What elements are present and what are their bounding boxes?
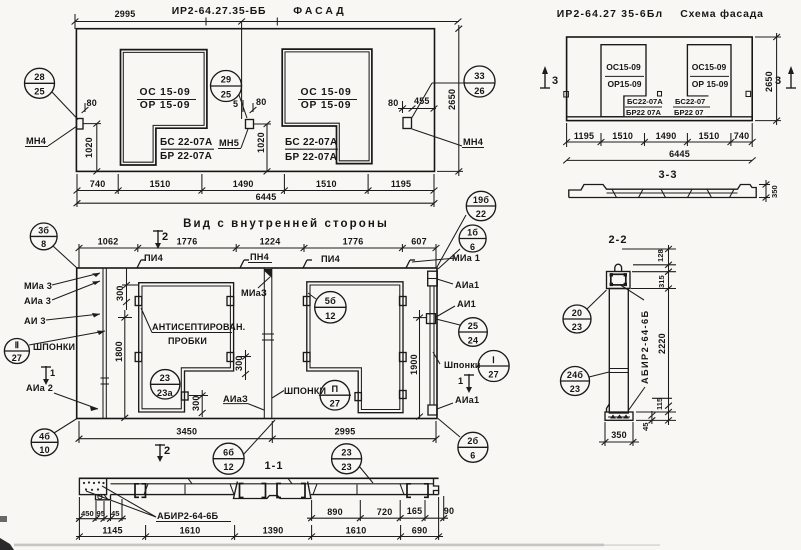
svg-text:300: 300 bbox=[115, 285, 125, 301]
svg-text:740: 740 bbox=[734, 131, 750, 141]
svg-text:1020: 1020 bbox=[256, 132, 266, 153]
svg-text:25: 25 bbox=[468, 321, 478, 331]
svg-text:1-1: 1-1 bbox=[265, 460, 284, 472]
svg-text:27: 27 bbox=[12, 353, 22, 363]
svg-text:25: 25 bbox=[221, 90, 232, 100]
svg-text:МН4: МН4 bbox=[463, 137, 484, 147]
svg-text:1: 1 bbox=[458, 376, 463, 386]
svg-text:27: 27 bbox=[488, 370, 498, 380]
svg-text:23а: 23а bbox=[157, 388, 174, 398]
svg-text:1510: 1510 bbox=[612, 131, 633, 141]
svg-text:1510: 1510 bbox=[150, 179, 171, 189]
svg-text:3б: 3б bbox=[38, 226, 49, 236]
svg-text:6б: 6б bbox=[223, 448, 234, 458]
svg-text:1б: 1б bbox=[467, 228, 478, 238]
svg-text:Шпонки: Шпонки bbox=[444, 360, 481, 370]
svg-text:ПРОБКИ: ПРОБКИ bbox=[168, 336, 207, 346]
svg-text:12: 12 bbox=[325, 311, 336, 321]
svg-text:607: 607 bbox=[411, 237, 427, 247]
svg-text:12: 12 bbox=[223, 462, 233, 472]
svg-text:АБИР2-64-6Б: АБИР2-64-6Б bbox=[157, 511, 219, 521]
svg-text:27: 27 bbox=[330, 399, 341, 409]
svg-text:БС22-07А: БС22-07А bbox=[627, 97, 663, 106]
svg-text:ФАСАД: ФАСАД bbox=[293, 6, 346, 17]
svg-text:БР 22-07А: БР 22-07А bbox=[285, 152, 337, 163]
svg-text:95: 95 bbox=[97, 509, 106, 518]
svg-text:128: 128 bbox=[656, 249, 665, 262]
svg-text:2220: 2220 bbox=[657, 333, 667, 354]
svg-text:МН5: МН5 bbox=[219, 138, 239, 148]
svg-text:890: 890 bbox=[327, 507, 343, 517]
svg-text:29: 29 bbox=[221, 75, 232, 85]
svg-text:2650: 2650 bbox=[764, 71, 774, 92]
svg-text:1145: 1145 bbox=[102, 526, 122, 536]
svg-text:2995: 2995 bbox=[335, 427, 356, 437]
svg-text:БР22 07А: БР22 07А bbox=[626, 108, 662, 117]
svg-text:2650: 2650 bbox=[447, 89, 457, 110]
svg-text:ОС 15-09: ОС 15-09 bbox=[139, 87, 190, 98]
svg-text:АИа1: АИа1 bbox=[455, 395, 479, 405]
svg-text:23: 23 bbox=[572, 322, 582, 332]
svg-text:10: 10 bbox=[39, 445, 49, 455]
svg-text:АИа1: АИа1 bbox=[455, 280, 479, 290]
svg-text:20: 20 bbox=[572, 308, 582, 318]
svg-text:АИаЗ: АИаЗ bbox=[223, 394, 248, 404]
svg-text:1490: 1490 bbox=[233, 179, 254, 189]
svg-text:720: 720 bbox=[377, 507, 393, 517]
svg-text:БС22-07: БС22-07 bbox=[675, 97, 705, 106]
svg-text:28: 28 bbox=[34, 72, 45, 82]
svg-text:8: 8 bbox=[41, 239, 46, 249]
svg-text:ОС15-09: ОС15-09 bbox=[606, 62, 641, 72]
svg-text:АИ1: АИ1 bbox=[457, 299, 476, 309]
svg-text:25: 25 bbox=[34, 87, 45, 97]
svg-text:Схема фасада: Схема фасада bbox=[680, 8, 763, 20]
svg-text:Вид с внутренней стороны: Вид с внутренней стороны bbox=[183, 218, 389, 230]
svg-text:1490: 1490 bbox=[656, 131, 677, 141]
svg-text:1900: 1900 bbox=[409, 354, 419, 375]
svg-text:2б: 2б bbox=[467, 436, 478, 446]
svg-text:ОР 15-09: ОР 15-09 bbox=[301, 100, 351, 111]
svg-text:23: 23 bbox=[160, 373, 171, 383]
svg-text:740: 740 bbox=[90, 179, 106, 189]
svg-text:П: П bbox=[331, 384, 338, 394]
svg-text:6445: 6445 bbox=[256, 192, 277, 202]
svg-text:1776: 1776 bbox=[343, 237, 364, 247]
svg-text:90: 90 bbox=[444, 506, 454, 516]
svg-text:ОР 15-09: ОР 15-09 bbox=[692, 79, 729, 89]
svg-text:АИ 3: АИ 3 bbox=[24, 316, 46, 326]
svg-text:ОР15-09: ОР15-09 bbox=[607, 79, 641, 89]
svg-text:1195: 1195 bbox=[391, 179, 411, 189]
svg-text:1510: 1510 bbox=[316, 179, 337, 189]
svg-text:3: 3 bbox=[552, 75, 559, 87]
svg-text:6: 6 bbox=[470, 242, 475, 252]
svg-text:80: 80 bbox=[388, 98, 398, 108]
svg-text:350: 350 bbox=[611, 430, 627, 440]
svg-text:БС 22-07А: БС 22-07А bbox=[285, 137, 338, 148]
svg-text:МИа 1: МИа 1 bbox=[452, 253, 480, 263]
svg-text:МИа 3: МИа 3 bbox=[24, 281, 52, 291]
svg-text:БР22 07: БР22 07 bbox=[674, 108, 704, 117]
svg-text:1776: 1776 bbox=[177, 237, 198, 247]
svg-text:26: 26 bbox=[474, 86, 485, 96]
svg-text:3450: 3450 bbox=[176, 427, 197, 437]
svg-text:350: 350 bbox=[770, 185, 779, 198]
svg-text:300: 300 bbox=[191, 395, 201, 411]
svg-text:19б: 19б bbox=[473, 195, 489, 205]
svg-text:МИаЗ: МИаЗ bbox=[241, 288, 267, 298]
svg-text:2: 2 bbox=[162, 231, 169, 243]
svg-text:АНТИСЕПТИРОВАН.: АНТИСЕПТИРОВАН. bbox=[152, 322, 245, 332]
svg-text:3: 3 bbox=[775, 75, 782, 87]
svg-text:АИа 2: АИа 2 bbox=[26, 383, 53, 393]
svg-text:ОР 15-09: ОР 15-09 bbox=[140, 100, 190, 111]
svg-text:165: 165 bbox=[407, 506, 423, 516]
svg-text:6: 6 bbox=[470, 451, 475, 461]
svg-text:22: 22 bbox=[476, 209, 486, 219]
svg-text:ОС 15-09: ОС 15-09 bbox=[300, 87, 351, 98]
svg-text:300: 300 bbox=[234, 355, 244, 371]
svg-text:АИа 3: АИа 3 bbox=[24, 296, 51, 306]
svg-text:1610: 1610 bbox=[346, 526, 367, 536]
svg-text:5б: 5б bbox=[325, 296, 336, 306]
svg-text:24: 24 bbox=[468, 336, 478, 346]
svg-text:80: 80 bbox=[87, 98, 97, 108]
svg-text:ИР2-64.27.35-ББ: ИР2-64.27.35-ББ bbox=[172, 6, 266, 17]
svg-text:45: 45 bbox=[641, 422, 650, 431]
svg-text:23: 23 bbox=[570, 384, 580, 394]
svg-text:1610: 1610 bbox=[180, 526, 201, 536]
svg-text:45: 45 bbox=[111, 509, 120, 518]
svg-text:1020: 1020 bbox=[84, 137, 94, 158]
svg-text:ПН4: ПН4 bbox=[250, 252, 270, 262]
svg-text:6445: 6445 bbox=[669, 149, 690, 159]
svg-text:1: 1 bbox=[50, 368, 55, 378]
svg-text:24б: 24б bbox=[567, 370, 583, 380]
svg-text:115: 115 bbox=[655, 397, 664, 410]
svg-text:ПИ4: ПИ4 bbox=[321, 254, 341, 264]
svg-text:БС 22-07А: БС 22-07А bbox=[160, 137, 213, 148]
svg-text:ИР2-64.27 35-6Бл: ИР2-64.27 35-6Бл bbox=[557, 9, 664, 20]
svg-text:ПИ4: ПИ4 bbox=[144, 253, 164, 263]
svg-text:АБИР2-64-6Б: АБИР2-64-6Б bbox=[640, 309, 650, 384]
svg-text:690: 690 bbox=[412, 526, 428, 536]
svg-text:315: 315 bbox=[657, 275, 666, 288]
svg-text:1224: 1224 bbox=[260, 237, 281, 247]
svg-text:2995: 2995 bbox=[115, 9, 136, 19]
svg-text:2: 2 bbox=[164, 445, 171, 457]
svg-text:Ⅱ: Ⅱ bbox=[15, 340, 20, 350]
svg-text:23: 23 bbox=[341, 462, 351, 472]
svg-text:1510: 1510 bbox=[699, 131, 720, 141]
svg-text:3-3: 3-3 bbox=[659, 169, 678, 181]
svg-text:МН4: МН4 bbox=[26, 136, 47, 146]
svg-text:БР 22-07А: БР 22-07А bbox=[160, 151, 212, 162]
svg-text:2-2: 2-2 bbox=[609, 234, 628, 246]
svg-text:5: 5 bbox=[233, 99, 238, 109]
svg-text:80: 80 bbox=[256, 97, 266, 107]
svg-text:1800: 1800 bbox=[114, 341, 124, 362]
svg-text:450: 450 bbox=[81, 509, 94, 518]
svg-text:33: 33 bbox=[474, 71, 485, 81]
svg-text:4б: 4б bbox=[39, 432, 50, 442]
svg-text:1062: 1062 bbox=[98, 237, 119, 247]
svg-text:1390: 1390 bbox=[263, 526, 284, 536]
svg-text:Ⅰ: Ⅰ bbox=[492, 355, 495, 365]
svg-text:ОС15-09: ОС15-09 bbox=[692, 62, 727, 72]
svg-text:1195: 1195 bbox=[574, 131, 594, 141]
svg-text:23: 23 bbox=[341, 448, 351, 458]
